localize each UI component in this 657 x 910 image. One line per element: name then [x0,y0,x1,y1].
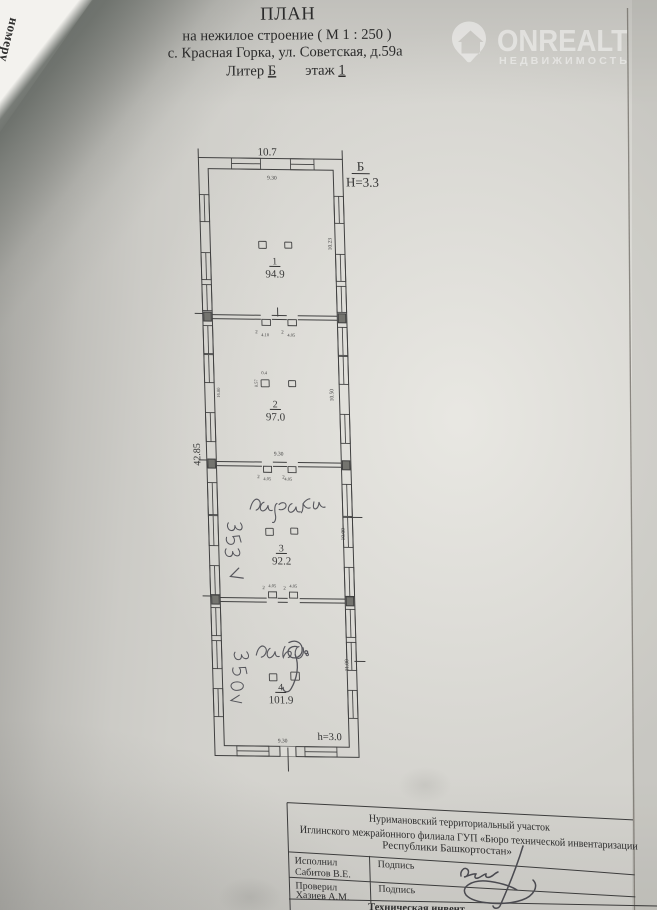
svg-text:2: 2 [262,586,265,591]
svg-text:2: 2 [255,330,258,335]
svg-text:4.05: 4.05 [289,584,298,589]
svg-text:10.50: 10.50 [329,389,335,402]
svg-text:101.9: 101.9 [268,694,294,706]
svg-text:9.30: 9.30 [274,451,284,457]
svg-text:Подпись: Подпись [378,884,415,897]
svg-text:4.05: 4.05 [268,583,277,588]
svg-text:9.30: 9.30 [278,738,288,744]
svg-text:94.9: 94.9 [265,268,285,280]
svg-text:92.2: 92.2 [272,555,292,567]
svg-text:0.4: 0.4 [261,370,268,375]
svg-text:2: 2 [273,399,278,410]
svg-text:ONREALT: ONREALT [497,23,628,58]
svg-text:2: 2 [257,475,260,480]
svg-text:ПЛАН: ПЛАН [260,4,315,24]
svg-text:Н=3.3: Н=3.3 [346,174,379,189]
svg-text:2: 2 [281,331,284,336]
svg-text:Техническая инвент: Техническая инвент [368,902,466,910]
svg-text:4: 4 [278,682,283,693]
svg-text:Подпись: Подпись [378,859,415,872]
svg-text:с. Красная Горка, ул. Советска: с. Красная Горка, ул. Советская, д.59а [168,43,404,61]
svg-text:16.00: 16.00 [216,387,221,398]
svg-text:НЕДВИЖИМОСТЬ: НЕДВИЖИМОСТЬ [499,55,630,67]
svg-text:Литер Б: Литер Б [226,63,276,79]
svg-text:97.0: 97.0 [266,411,286,423]
svg-text:на нежилое строение ( М 1 : 25: на нежилое строение ( М 1 : 250 ) [182,27,391,45]
svg-text:10.00: 10.00 [341,528,347,541]
svg-text:4.05: 4.05 [284,477,293,482]
svg-text:4.05: 4.05 [263,476,272,481]
svg-text:42.85: 42.85 [192,443,204,466]
svg-text:9.30: 9.30 [267,175,277,181]
svg-text:этаж 1: этаж 1 [305,62,345,78]
svg-text:Б: Б [357,159,365,174]
svg-text:Хазиев А.М.: Хазиев А.М. [296,890,350,904]
svg-text:0.57: 0.57 [254,379,259,388]
svg-text:3: 3 [279,543,284,554]
svg-text:11.00: 11.00 [344,659,350,671]
svg-text:4.10: 4.10 [261,332,270,337]
svg-text:1: 1 [272,256,277,267]
svg-text:2: 2 [283,586,286,591]
svg-text:10.23: 10.23 [328,238,334,251]
svg-text:4.05: 4.05 [287,333,296,338]
svg-text:h=3.0: h=3.0 [317,732,342,743]
svg-text:10.7: 10.7 [257,146,277,158]
